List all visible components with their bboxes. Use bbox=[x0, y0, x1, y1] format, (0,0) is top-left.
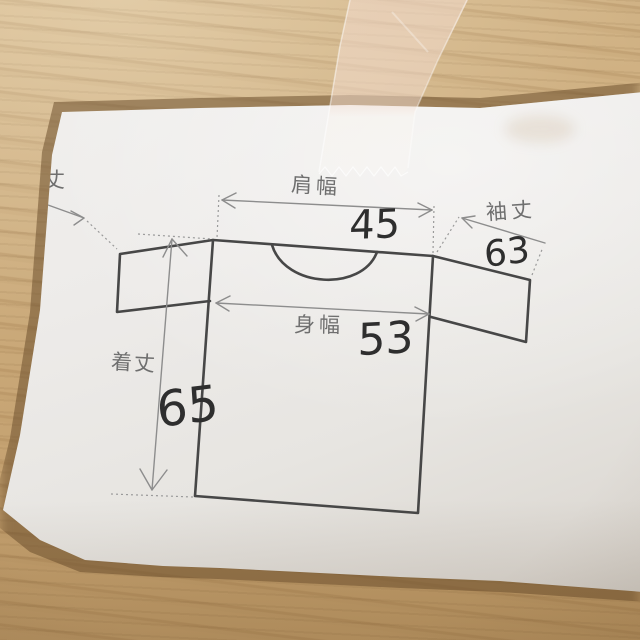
sleeve-length-value: 63 bbox=[483, 232, 531, 274]
dimension-lines bbox=[48, 193, 545, 490]
body-length-value: 65 bbox=[155, 378, 220, 435]
shirt-outline bbox=[117, 240, 530, 513]
photo-scene: 肩幅 袖丈 身幅 着丈 丈 45 63 53 65 bbox=[0, 0, 640, 640]
shoulder-width-value: 45 bbox=[349, 204, 401, 246]
body-length-label: 着丈 bbox=[110, 352, 157, 375]
sleeve-length-label: 袖丈 bbox=[485, 199, 536, 223]
tape-edge-highlights bbox=[0, 0, 640, 200]
body-width-label: 身幅 bbox=[294, 315, 344, 337]
body-width-value: 53 bbox=[357, 316, 414, 363]
